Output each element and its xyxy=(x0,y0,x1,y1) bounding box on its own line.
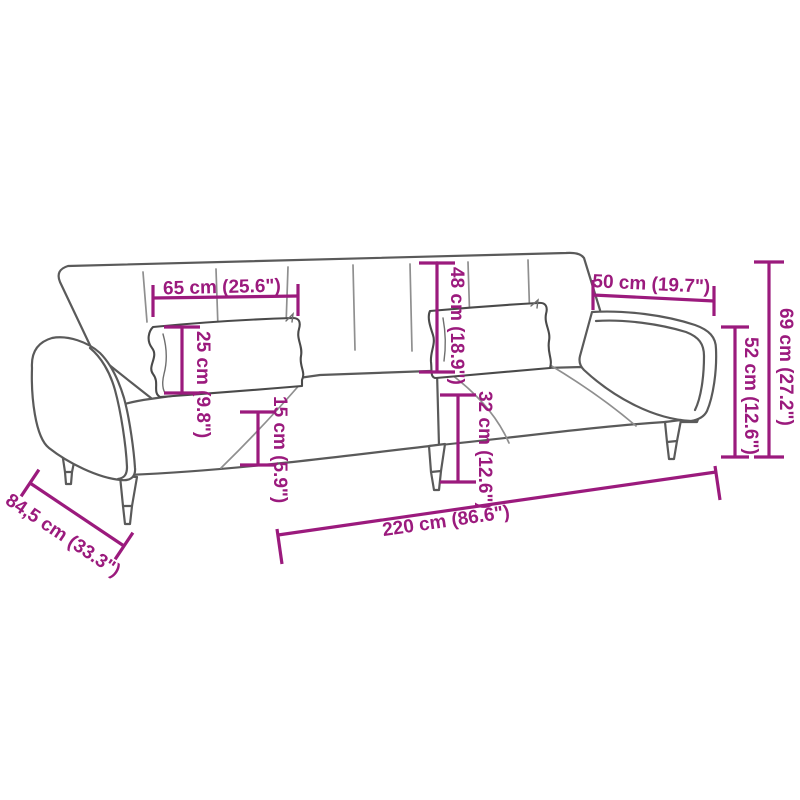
dimension-label-25cm: 25 cm (9.8") xyxy=(192,331,213,438)
sofa-dimension-diagram: 65 cm (25.6") 25 cm (9.8") 15 cm (5.9") … xyxy=(0,0,800,800)
dimension-label-15cm: 15 cm (5.9") xyxy=(269,396,290,503)
dimension-84-5cm: 84,5 cm (33.3") xyxy=(1,470,132,582)
dimension-220cm: 220 cm (86.6") xyxy=(277,466,720,564)
dimension-label-220cm: 220 cm (86.6") xyxy=(381,502,511,541)
sofa-leg-front-left xyxy=(120,476,137,524)
dimension-50cm: 50 cm (19.7") xyxy=(592,271,714,316)
armrest-left xyxy=(32,337,135,480)
dimension-label-65cm: 65 cm (25.6") xyxy=(163,276,281,300)
sofa-illustration xyxy=(32,253,716,524)
dimension-label-48cm: 48 cm (18.9") xyxy=(446,267,467,385)
diagram-canvas: 65 cm (25.6") 25 cm (9.8") 15 cm (5.9") … xyxy=(0,0,800,800)
dimension-52cm: 52 cm (12.6") xyxy=(721,327,761,457)
dimension-label-69cm: 69 cm (27.2") xyxy=(775,308,796,426)
dimension-65cm: 65 cm (25.6") xyxy=(153,276,298,317)
dimension-label-32cm: 32 cm (12.6") xyxy=(474,391,495,509)
dimension-label-52cm: 52 cm (12.6") xyxy=(740,337,761,455)
sofa-leg-front-right xyxy=(665,420,681,459)
dimension-label-50cm: 50 cm (19.7") xyxy=(592,271,711,298)
